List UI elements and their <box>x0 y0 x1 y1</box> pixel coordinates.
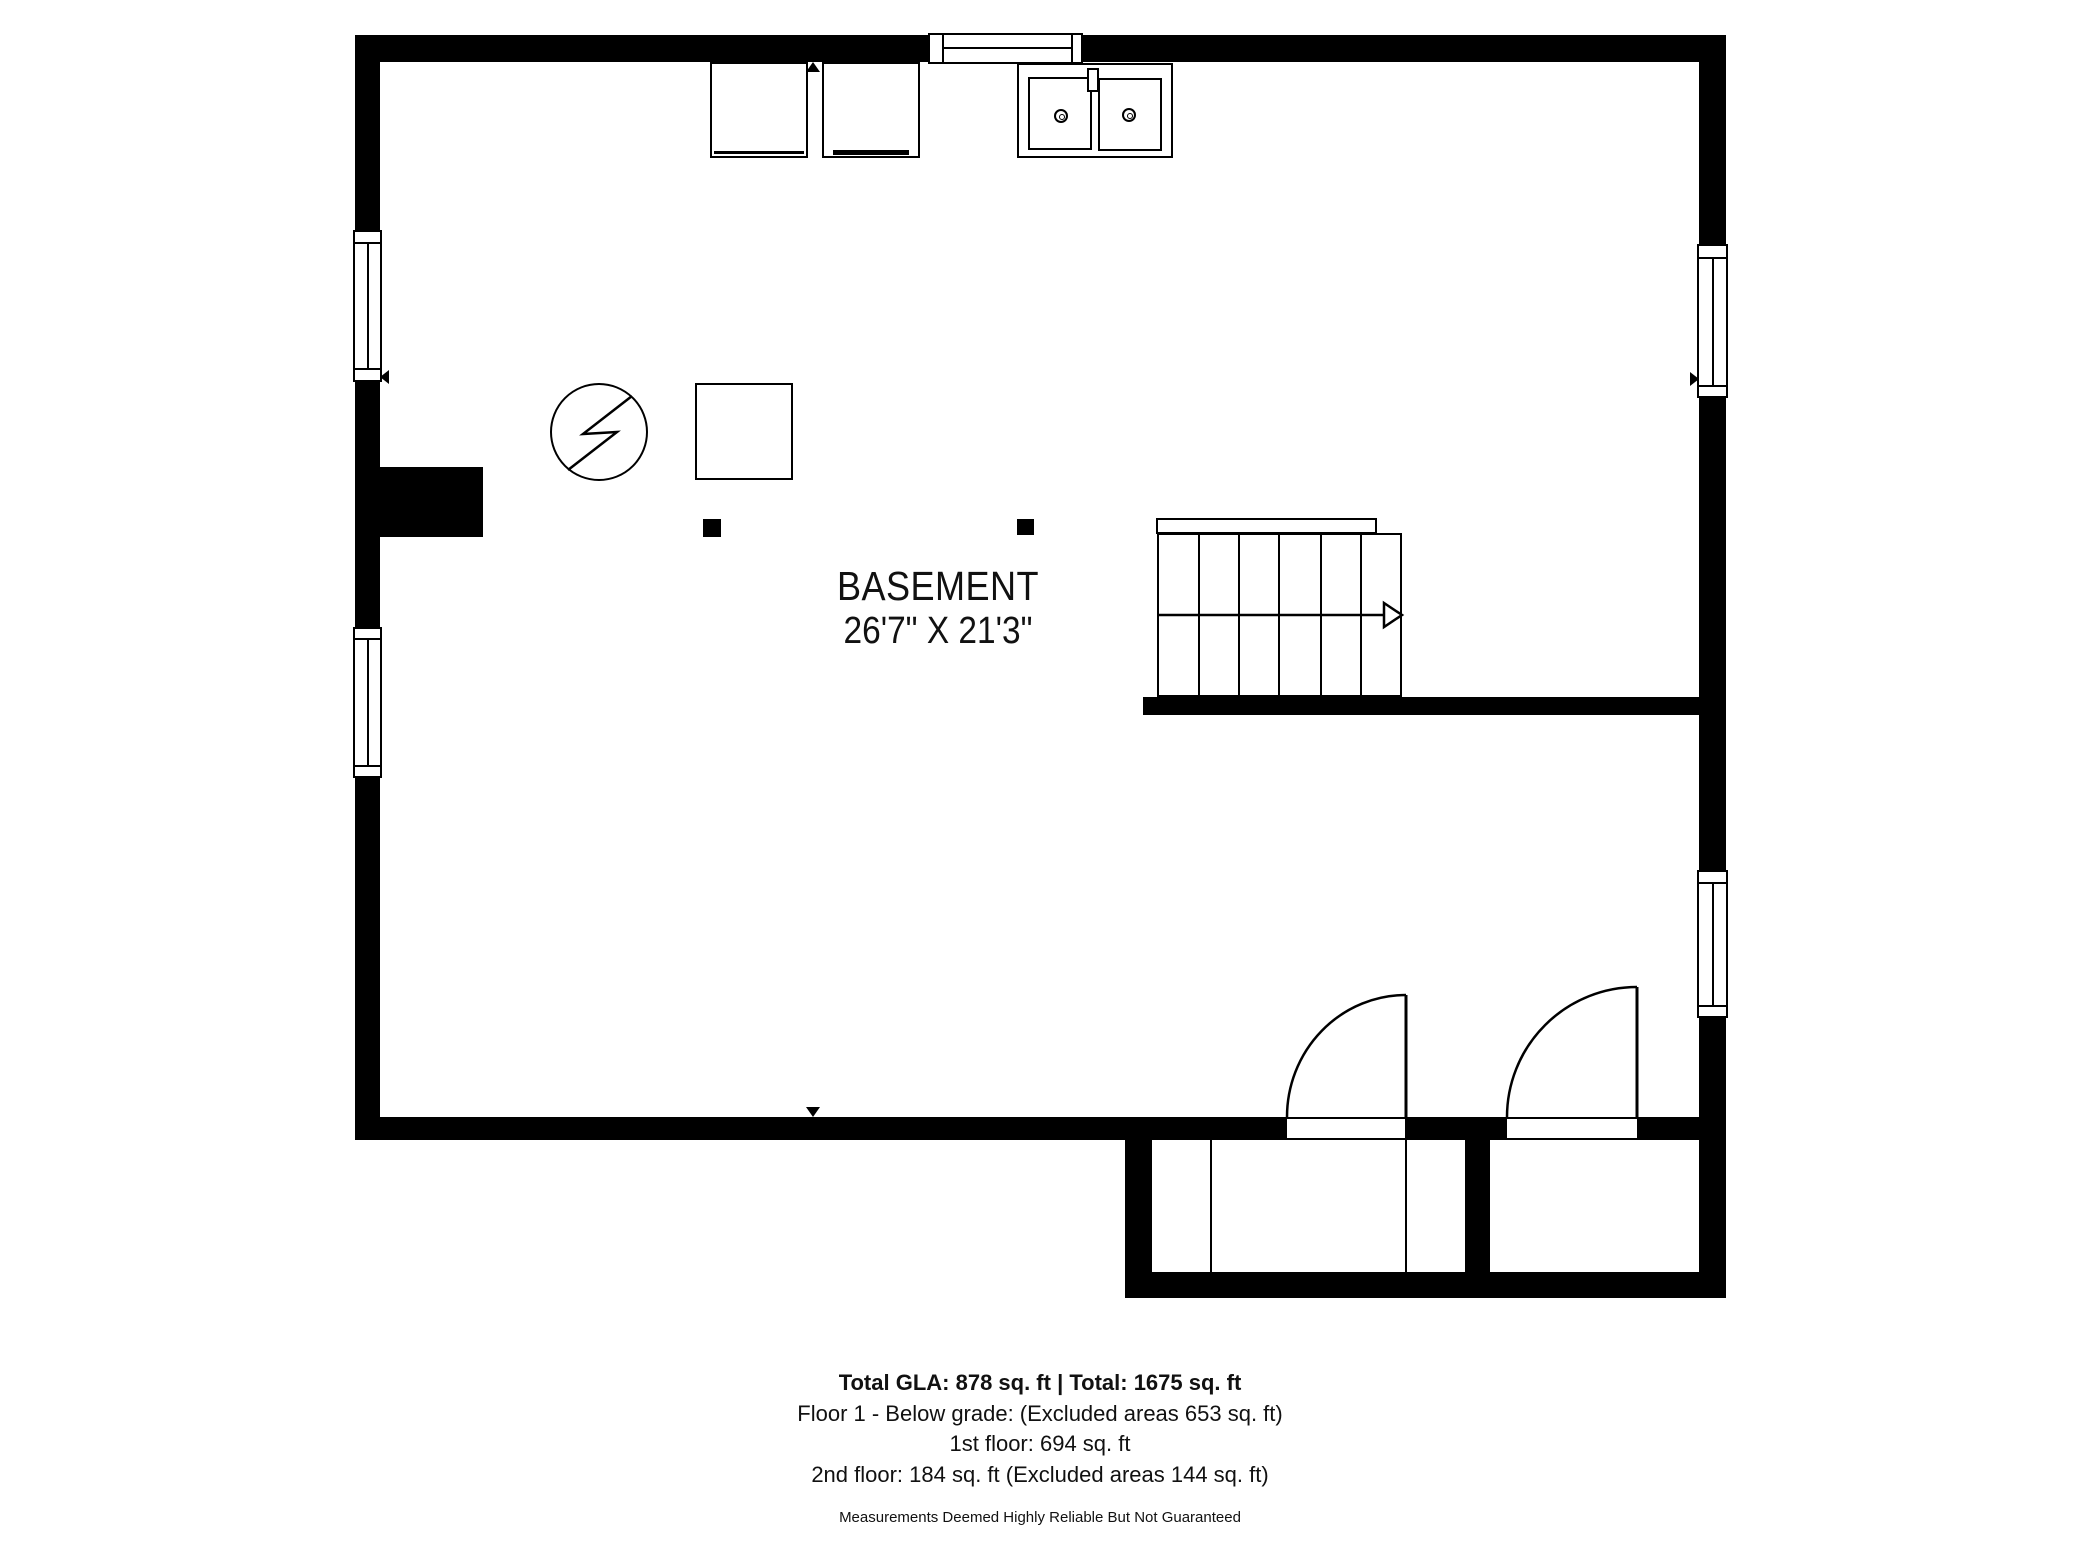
second-floor-line: 2nd floor: 184 sq. ft (Excluded areas 14… <box>590 1460 1490 1491</box>
sink-drain-icon <box>1122 108 1136 122</box>
plan-linework <box>0 0 2080 1560</box>
window-sill-line <box>1699 1005 1726 1007</box>
dimension-arrow-down-icon <box>806 1107 820 1117</box>
support-post <box>703 519 721 537</box>
sink-drain-center <box>1059 114 1065 120</box>
window-pane-line <box>944 47 1071 49</box>
dimension-arrow-left-icon <box>380 370 389 384</box>
dimension-arrow-up-icon <box>806 62 820 72</box>
window-right-lower <box>1697 870 1728 1018</box>
furnace-square <box>695 383 793 480</box>
wall-room-divider <box>1465 1140 1490 1272</box>
support-post <box>1017 519 1034 535</box>
floor1-line: Floor 1 - Below grade: (Excluded areas 6… <box>590 1399 1490 1430</box>
wall-bottom-main <box>355 1117 1699 1140</box>
appliance-front-line <box>714 151 804 154</box>
wall-extension-bottom <box>1125 1272 1726 1298</box>
stair-tread-line <box>1320 535 1322 695</box>
window-sill-line <box>355 765 380 767</box>
window-left-lower <box>353 627 382 778</box>
chimney-block <box>380 467 483 537</box>
window-left-upper <box>353 230 382 382</box>
stairs-landing-strip <box>1156 518 1377 534</box>
window-pane-line <box>1712 259 1714 385</box>
sink-faucet-icon <box>1087 68 1099 92</box>
window-top <box>928 33 1083 64</box>
window-pane-line <box>367 640 369 765</box>
window-sill-line <box>1071 35 1073 62</box>
total-gla-line: Total GLA: 878 sq. ft | Total: 1675 sq. … <box>590 1368 1490 1399</box>
first-floor-line: 1st floor: 694 sq. ft <box>590 1429 1490 1460</box>
appliance-right <box>822 62 920 158</box>
door-opening-right <box>1507 1117 1637 1140</box>
wall-left <box>355 35 380 1140</box>
closet-partition-line <box>1405 1140 1407 1272</box>
wall-under-stairs <box>1143 697 1699 715</box>
stair-tread-line <box>1278 535 1280 695</box>
sink-drain-icon <box>1054 109 1068 123</box>
window-sill-line <box>355 368 380 370</box>
area-summary: Total GLA: 878 sq. ft | Total: 1675 sq. … <box>590 1368 1490 1527</box>
room-label: BASEMENT 26'7" X 21'3" <box>674 563 1202 653</box>
wall-extension-left <box>1125 1117 1152 1298</box>
room-name: BASEMENT <box>674 563 1202 609</box>
window-sill-line <box>1699 385 1726 387</box>
door-opening-left <box>1287 1117 1405 1140</box>
door-swing-arc <box>1287 995 1406 1117</box>
closet-partition-line <box>1210 1140 1212 1272</box>
water-heater-icon <box>550 383 648 481</box>
floorplan-page: BASEMENT 26'7" X 21'3" Total GLA: 878 sq… <box>0 0 2080 1560</box>
door-swing-arc <box>1507 987 1637 1117</box>
room-dimensions: 26'7" X 21'3" <box>674 609 1202 653</box>
disclaimer-text: Measurements Deemed Highly Reliable But … <box>590 1509 1490 1527</box>
appliance-front-line <box>833 150 909 155</box>
window-pane-line <box>367 244 369 368</box>
window-right-upper <box>1697 244 1728 398</box>
dimension-arrow-right-icon <box>1690 372 1699 386</box>
appliance-left <box>710 62 808 158</box>
stair-tread-line <box>1360 535 1362 695</box>
wall-right <box>1699 35 1726 1298</box>
stair-tread-line <box>1238 535 1240 695</box>
window-pane-line <box>1712 884 1714 1005</box>
sink-drain-center <box>1127 113 1133 119</box>
